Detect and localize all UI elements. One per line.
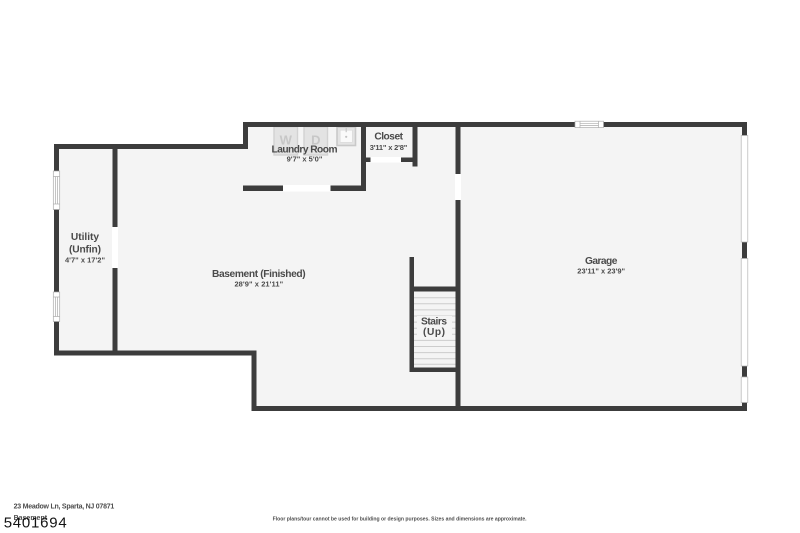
svg-text:Stairs: Stairs [421, 317, 447, 328]
svg-text:3'11" x 2'8": 3'11" x 2'8" [370, 143, 408, 152]
svg-text:Garage: Garage [585, 256, 618, 267]
svg-text:(Up): (Up) [423, 327, 445, 338]
svg-text:28'9" x 21'11": 28'9" x 21'11" [234, 280, 283, 289]
svg-text:Utility: Utility [71, 232, 100, 243]
svg-text:9'7" x 5'0": 9'7" x 5'0" [287, 155, 323, 164]
svg-text:5401694: 5401694 [4, 514, 67, 531]
svg-text:Floor plans/tour cannot be use: Floor plans/tour cannot be used for buil… [273, 517, 528, 523]
svg-text:Basement (Finished): Basement (Finished) [212, 269, 306, 280]
svg-text:4'7" x 17'2": 4'7" x 17'2" [65, 256, 105, 265]
svg-text:(Unfin): (Unfin) [69, 245, 101, 256]
svg-text:23'11" x 23'9": 23'11" x 23'9" [577, 267, 625, 276]
svg-text:Laundry Room: Laundry Room [272, 144, 338, 155]
svg-text:Closet: Closet [374, 131, 403, 142]
svg-text:23 Meadow Ln, Sparta, NJ 07871: 23 Meadow Ln, Sparta, NJ 07871 [14, 503, 115, 510]
